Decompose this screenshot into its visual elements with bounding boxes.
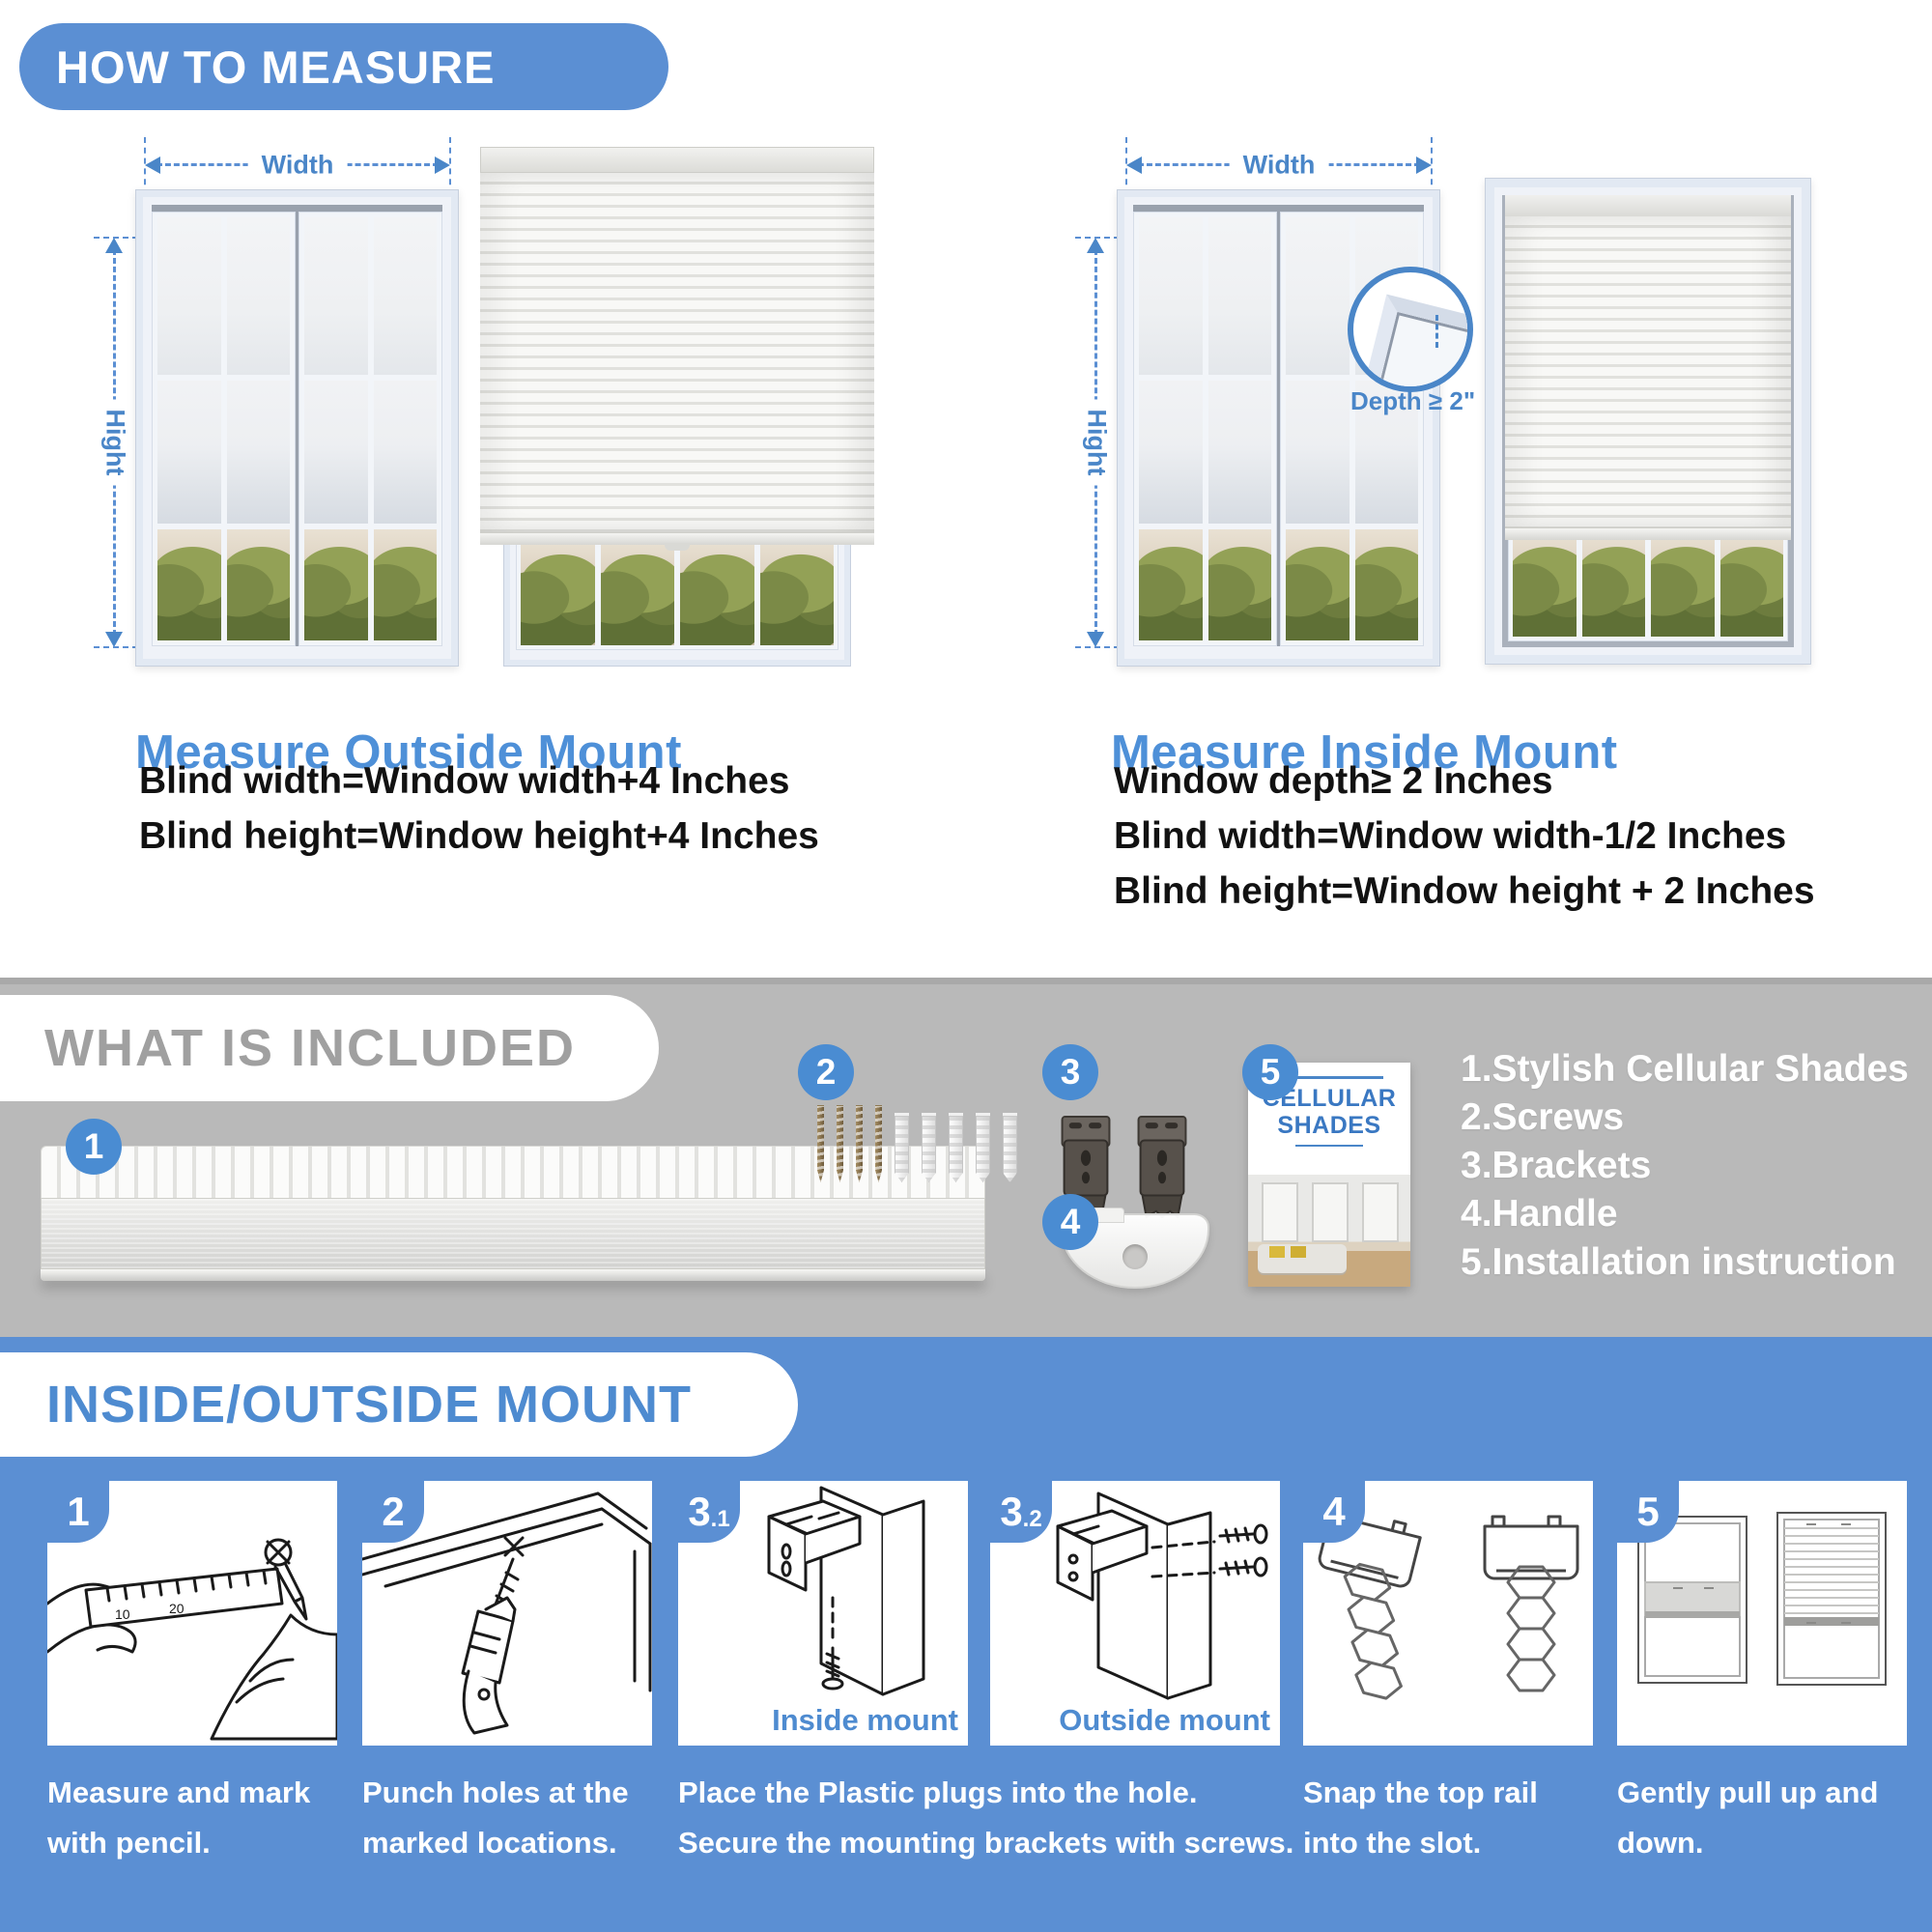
shade-outside-mount-illustration	[480, 147, 874, 667]
cellular-shade-cloth	[1505, 216, 1791, 527]
step-panel-3-2: 3.2 Outside mount	[990, 1481, 1280, 1746]
width-dimension-inside: Width	[1126, 151, 1432, 180]
instruction-line: Blind height=Window height+4 Inches	[139, 809, 819, 864]
window-pane-trees	[1208, 529, 1272, 640]
screw-icon	[875, 1105, 882, 1182]
window-pane	[1208, 381, 1272, 524]
step3-caption: Place the Plastic plugs into the hole.Se…	[678, 1768, 1293, 1868]
outside-mount-label: Outside mount	[1059, 1703, 1270, 1738]
wall-anchor-icon	[922, 1113, 936, 1182]
depth-label: Depth ≥ 2"	[1350, 386, 1505, 416]
photo-window	[1312, 1182, 1349, 1242]
shade-handle-nub	[665, 543, 690, 551]
dim-tick	[449, 137, 451, 195]
window-pane-trees	[1513, 532, 1577, 637]
item-badge-3: 3	[1042, 1044, 1098, 1100]
included-item: 2.Screws	[1461, 1094, 1909, 1142]
screw-icon	[856, 1105, 863, 1182]
window-pane	[227, 217, 291, 375]
window-pane-trees	[1651, 532, 1715, 637]
window-pane-trees	[227, 529, 291, 640]
height-dimension-outside: Hight	[100, 238, 129, 647]
step-panel-4: 4	[1303, 1481, 1593, 1746]
rail-bottom-edge	[41, 1269, 985, 1281]
dim-tick	[1125, 137, 1127, 195]
window-pane-trees	[1720, 532, 1784, 637]
window-pane	[1286, 217, 1350, 375]
instruction-line: Blind width=Window width-1/2 Inches	[1114, 809, 1815, 864]
item-badge-2: 2	[798, 1044, 854, 1100]
step-panel-3-1: 3.1 Inside mount	[678, 1481, 968, 1746]
photo-pillow	[1269, 1246, 1285, 1258]
depth-magnifier-callout	[1348, 267, 1473, 392]
wall-anchor-icon	[949, 1113, 963, 1182]
how-to-measure-section: HOW TO MEASURE Width Hight	[0, 0, 1932, 978]
what-is-included-header: WHAT IS INCLUDED	[0, 995, 659, 1101]
screw-icon	[837, 1105, 843, 1182]
arrow-up-icon	[105, 238, 123, 253]
window-doors	[152, 205, 442, 646]
included-item: 4.Handle	[1461, 1190, 1909, 1238]
step-panel-1: 1 10 20	[47, 1481, 337, 1746]
height-label: Hight	[100, 400, 130, 486]
dim-tick	[1075, 237, 1120, 239]
bracket-icon	[1131, 1115, 1193, 1223]
window-pane	[374, 217, 438, 375]
included-item: 3.Brackets	[1461, 1142, 1909, 1190]
window-pane-trees	[1582, 532, 1646, 637]
dim-tick	[94, 237, 138, 239]
arrow-down-icon	[105, 632, 123, 647]
depth-dim-line	[1435, 315, 1438, 348]
inside-outside-mount-title: INSIDE/OUTSIDE MOUNT	[46, 1375, 692, 1435]
outside-mount-instructions: Blind width=Window width+4 Inches Blind …	[139, 753, 819, 864]
booklet-rule	[1295, 1145, 1363, 1147]
step-panel-5: 5	[1617, 1481, 1907, 1746]
shade-bottom-rail	[1505, 527, 1791, 540]
instruction-line: Blind height=Window height + 2 Inches	[1114, 864, 1815, 919]
what-is-included-title: WHAT IS INCLUDED	[44, 1018, 576, 1078]
height-label: Hight	[1082, 400, 1112, 486]
arrow-left-icon	[1126, 156, 1142, 174]
arrow-down-icon	[1087, 632, 1104, 647]
arrow-left-icon	[145, 156, 160, 174]
window-panes	[516, 534, 838, 650]
dim-tick	[1431, 137, 1433, 195]
height-dimension-inside: Hight	[1082, 238, 1111, 647]
window-pane	[1139, 381, 1203, 524]
window-pane	[1208, 217, 1272, 375]
wall-anchor-icon	[895, 1113, 909, 1182]
shade-inside-mount-illustration	[1485, 178, 1811, 665]
arrow-right-icon	[435, 156, 450, 174]
window-illustration-inside	[1117, 189, 1440, 667]
inside-outside-mount-section: INSIDE/OUTSIDE MOUNT 1 10 20	[0, 1337, 1932, 1932]
item-badge-5: 5	[1242, 1044, 1298, 1100]
window-pane	[1139, 217, 1203, 375]
window-pane-trees	[374, 529, 438, 640]
svg-text:10: 10	[115, 1606, 130, 1622]
instruction-line: Window depth≥ 2 Inches	[1114, 753, 1815, 809]
included-item: 1.Stylish Cellular Shades	[1461, 1045, 1909, 1094]
arrow-right-icon	[1416, 156, 1432, 174]
shade-bottom-rail	[480, 532, 874, 545]
window-panes	[1508, 527, 1788, 641]
window-pane	[374, 381, 438, 524]
window-illustration-outside	[135, 189, 459, 667]
cellular-shades-infographic: HOW TO MEASURE Width Hight	[0, 0, 1932, 1932]
step4-caption: Snap the top railinto the slot.	[1303, 1768, 1538, 1868]
width-label: Width	[248, 151, 348, 181]
window-recess	[1502, 195, 1794, 647]
window-pane-trees	[760, 539, 835, 645]
window-door	[152, 212, 296, 646]
included-item: 5.Installation instruction	[1461, 1238, 1909, 1287]
cellular-shade-inset	[1505, 195, 1791, 539]
dim-tick	[94, 646, 138, 648]
window-pane	[157, 217, 221, 375]
wall-anchor-icon	[1003, 1113, 1017, 1182]
item-badge-1: 1	[66, 1119, 122, 1175]
booklet-room-photo	[1248, 1175, 1410, 1287]
inside-outside-mount-header: INSIDE/OUTSIDE MOUNT	[0, 1352, 798, 1457]
rail-metal-band	[41, 1198, 985, 1269]
shade-top-rail	[1505, 195, 1791, 217]
photo-window	[1362, 1182, 1399, 1242]
how-to-measure-title: HOW TO MEASURE	[56, 41, 495, 94]
window-pane	[1286, 381, 1350, 524]
width-dimension-outside: Width	[145, 151, 450, 180]
inside-mount-label: Inside mount	[772, 1703, 958, 1738]
window-pane	[157, 381, 221, 524]
step5-caption: Gently pull up anddown.	[1617, 1768, 1878, 1868]
step1-caption: Measure and markwith pencil.	[47, 1768, 310, 1868]
window-pane-trees	[601, 539, 675, 645]
how-to-measure-header: HOW TO MEASURE	[19, 23, 668, 110]
window-pane-trees	[1355, 529, 1419, 640]
photo-window	[1262, 1182, 1298, 1242]
window-pane-trees	[304, 529, 368, 640]
window-pane	[304, 217, 368, 375]
step-panel-2: 2	[362, 1481, 652, 1746]
item-badge-4: 4	[1042, 1194, 1098, 1250]
window-pane	[304, 381, 368, 524]
window-doors	[1133, 205, 1424, 646]
cellular-shade-cloth	[480, 173, 874, 532]
booklet-title-line2: SHADES	[1248, 1112, 1410, 1139]
screws-and-anchors	[817, 1103, 1017, 1182]
window-pane-trees	[1139, 529, 1203, 640]
step2-caption: Punch holes at themarked locations.	[362, 1768, 629, 1868]
included-items-list: 1.Stylish Cellular Shades 2.Screws 3.Bra…	[1461, 1045, 1909, 1287]
arrow-up-icon	[1087, 238, 1104, 253]
window-corner-detail	[1362, 295, 1473, 392]
window-door	[1133, 212, 1277, 646]
window-pane	[227, 381, 291, 524]
window-pane-trees	[157, 529, 221, 640]
svg-text:20: 20	[169, 1601, 185, 1616]
photo-pillow	[1291, 1246, 1306, 1258]
window-pane-trees	[680, 539, 754, 645]
wall-anchor-icon	[976, 1113, 990, 1182]
window-pane-trees	[1286, 529, 1350, 640]
shade-mount-strip	[480, 147, 874, 173]
dim-tick	[144, 137, 146, 195]
window-door	[298, 212, 442, 646]
inside-mount-instructions: Window depth≥ 2 Inches Blind width=Windo…	[1114, 753, 1815, 919]
instruction-line: Blind width=Window width+4 Inches	[139, 753, 819, 809]
width-label: Width	[1230, 151, 1329, 181]
dim-tick	[1075, 646, 1120, 648]
what-is-included-section: WHAT IS INCLUDED 1 2 3 4 5	[0, 978, 1932, 1337]
screw-icon	[817, 1105, 824, 1182]
window-pane-trees	[521, 539, 595, 645]
